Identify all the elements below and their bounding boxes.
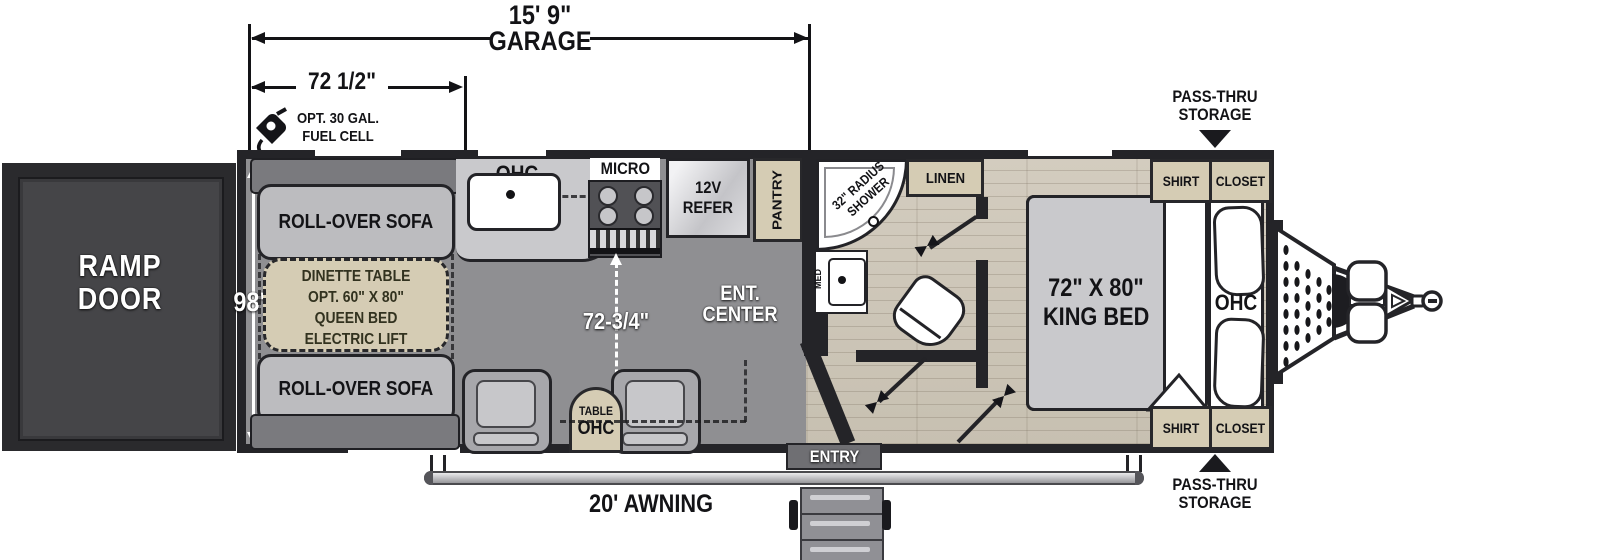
ent-center-label: CENTER bbox=[693, 304, 787, 326]
entry-step bbox=[800, 487, 884, 515]
shirt-closet-label: SHIRT bbox=[1163, 420, 1200, 436]
step-tread bbox=[810, 521, 870, 526]
step-tread bbox=[810, 495, 870, 500]
linen-label: LINEN bbox=[925, 170, 964, 187]
refrigerator: 12V REFER bbox=[666, 158, 750, 238]
entry-step bbox=[800, 513, 884, 541]
sofa-label: ROLL-OVER SOFA bbox=[279, 378, 434, 401]
dinette-label: ELECTRIC LIFT bbox=[278, 329, 435, 350]
window-opening bbox=[1028, 150, 1112, 156]
kitchen-sink bbox=[467, 173, 561, 231]
burner-icon bbox=[598, 186, 618, 206]
dim-extension-line bbox=[808, 24, 811, 154]
callout-arrow-icon bbox=[1199, 130, 1231, 148]
ramp-door-label: DOOR bbox=[50, 283, 189, 315]
faucet-icon bbox=[506, 190, 515, 199]
roll-over-sofa-top: ROLL-OVER SOFA bbox=[257, 184, 455, 260]
dinette-label: DINETTE TABLE bbox=[278, 266, 435, 287]
fuel-label: OPT. 30 GAL. bbox=[296, 111, 380, 127]
dinette-table: DINETTE TABLE OPT. 60" X 80" QUEEN BED E… bbox=[263, 258, 449, 352]
chair-seat bbox=[476, 380, 536, 428]
slide-line bbox=[744, 360, 747, 422]
sofa-label: ROLL-OVER SOFA bbox=[279, 211, 434, 234]
shower-drain-icon bbox=[868, 216, 879, 227]
dim-garage-line bbox=[252, 37, 490, 40]
entry-label: ENTRY bbox=[809, 447, 859, 467]
refer-label: REFER bbox=[683, 198, 733, 218]
callout-arrow-icon bbox=[1199, 454, 1231, 472]
bed-label: 72" X 80" bbox=[1048, 274, 1144, 303]
range-stove bbox=[588, 180, 662, 258]
chair-arm bbox=[473, 432, 539, 446]
med-cabinet-label-wrap: MED bbox=[813, 256, 823, 302]
shirt-closet-label: SHIRT bbox=[1163, 173, 1200, 189]
awning-bracket bbox=[1126, 455, 1142, 472]
awning-roller bbox=[424, 471, 1144, 485]
burner-icon bbox=[634, 186, 654, 206]
step-handle bbox=[789, 500, 798, 530]
floorplan-canvas: 15' 9" GARAGE 72 1/2" OPT. 30 GAL. FUEL … bbox=[0, 0, 1600, 560]
stove-grate bbox=[590, 228, 660, 248]
dim-arrow-icon bbox=[251, 32, 265, 44]
table-label: TABLE bbox=[575, 404, 617, 418]
dim-arrow-icon bbox=[449, 81, 463, 93]
slide-line bbox=[560, 420, 746, 423]
dim-arrow-icon bbox=[794, 32, 808, 44]
passthru-top-label: PASS-THRU bbox=[1165, 88, 1264, 106]
entry-door-box: ENTRY bbox=[786, 443, 882, 470]
propane-tank-icon bbox=[1348, 304, 1386, 342]
shirt-closet-label: CLOSET bbox=[1216, 420, 1265, 436]
vanity-sink bbox=[828, 258, 866, 306]
stove-knob-strip bbox=[590, 248, 660, 254]
med-cabinet-label: MED bbox=[813, 269, 823, 289]
shirt-closet-label: CLOSET bbox=[1216, 173, 1265, 189]
awning-bracket bbox=[430, 455, 446, 472]
awning-label: 20' AWNING bbox=[568, 491, 733, 517]
awning-end-cap bbox=[424, 471, 433, 485]
faucet-icon bbox=[838, 276, 846, 284]
microwave-label: MICRO bbox=[600, 159, 649, 179]
pillow bbox=[1212, 205, 1265, 297]
pantry: PANTRY bbox=[753, 158, 803, 242]
pantry-label: PANTRY bbox=[771, 170, 786, 230]
microwave-label-box: MICRO bbox=[590, 158, 660, 180]
step-tread bbox=[810, 547, 870, 552]
shirt-closet-bottom: SHIRT CLOSET bbox=[1150, 406, 1272, 450]
ramp-door-label: RAMP bbox=[50, 250, 189, 282]
dim-72-line bbox=[388, 86, 450, 89]
sofa-bolster bbox=[250, 414, 460, 450]
bath-wall bbox=[976, 197, 988, 219]
awning-end-cap bbox=[1135, 471, 1144, 485]
dim-extension-line bbox=[464, 76, 467, 154]
trailer-tongue-hitch bbox=[1274, 218, 1474, 388]
bed-ohc-label: OHC bbox=[1210, 292, 1262, 315]
shirt-closet-top: SHIRT CLOSET bbox=[1150, 159, 1272, 203]
entry-step bbox=[800, 539, 884, 560]
toilet-seat-line bbox=[899, 307, 941, 339]
passthru-bottom-label: PASS-THRU bbox=[1165, 476, 1264, 494]
dim-front-span: 72 1/2" bbox=[302, 70, 382, 95]
dinette-label: OPT. 60" X 80" bbox=[278, 287, 435, 308]
dim-arrow-icon bbox=[610, 253, 622, 265]
passthru-top-label: STORAGE bbox=[1165, 106, 1264, 124]
propane-tank-icon bbox=[1348, 262, 1386, 300]
dim-garage-length: 15' 9" bbox=[470, 1, 609, 29]
dim-garage-line bbox=[590, 37, 808, 40]
linen-cabinet: LINEN bbox=[906, 159, 984, 197]
ent-center-label: ENT. bbox=[693, 283, 787, 305]
dinette-label: QUEEN BED bbox=[278, 308, 435, 329]
dim-arrow-icon bbox=[251, 81, 265, 93]
passthru-bottom-label: STORAGE bbox=[1165, 494, 1264, 512]
chair-arm bbox=[622, 432, 688, 446]
refer-label: 12V bbox=[695, 178, 721, 198]
chair bbox=[462, 369, 552, 454]
burner-icon bbox=[634, 206, 654, 226]
bath-wall bbox=[804, 314, 828, 356]
chair bbox=[611, 369, 701, 454]
dim-garage-width: 72-3/4" bbox=[564, 310, 668, 334]
pillow bbox=[1212, 317, 1265, 409]
burner-icon bbox=[598, 206, 618, 226]
window-opening bbox=[478, 150, 546, 156]
window-opening bbox=[315, 150, 401, 156]
bed-label: KING BED bbox=[1043, 303, 1149, 332]
king-bed-mattress: 72" X 80" KING BED bbox=[1026, 195, 1166, 411]
bath-wall bbox=[976, 260, 988, 388]
fuel-label: FUEL CELL bbox=[296, 129, 380, 145]
step-handle bbox=[882, 500, 891, 530]
dim-garage-word: GARAGE bbox=[470, 27, 609, 55]
